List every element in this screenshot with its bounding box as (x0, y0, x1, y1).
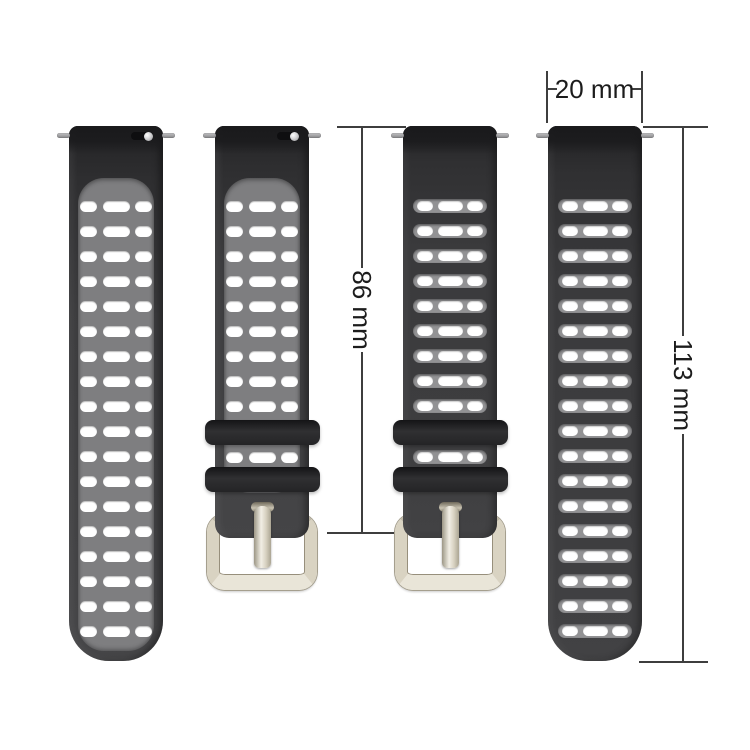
strap-hole (80, 476, 97, 487)
quick-release-knob (144, 132, 153, 141)
strap-hole-row (80, 301, 152, 312)
strap-hole-band (558, 549, 632, 563)
strap-hole (417, 452, 433, 462)
strap-hole (226, 376, 243, 387)
strap-hole (562, 326, 578, 336)
strap-hole (281, 276, 298, 287)
strap-hole-band (558, 449, 632, 463)
strap-hole (612, 601, 628, 611)
quick-release-knob (290, 132, 299, 141)
strap-hole (226, 226, 243, 237)
buckle-prong (442, 506, 459, 568)
strap-hole (417, 401, 433, 411)
strap-hole (135, 551, 152, 562)
strap-hole (583, 601, 608, 611)
strap-hole (562, 401, 578, 411)
strap-hole (80, 351, 97, 362)
strap-hole (438, 452, 463, 462)
strap-hole (583, 526, 608, 536)
dim-86-tick-bottom (327, 532, 399, 534)
strap-hole-row (80, 476, 152, 487)
strap-hole (249, 452, 276, 463)
keeper-loop (393, 467, 508, 492)
strap-hole (135, 526, 152, 537)
strap-hole (583, 351, 608, 361)
strap-hole (612, 251, 628, 261)
strap-hole (80, 551, 97, 562)
strap-hole (135, 351, 152, 362)
strap-hole (612, 476, 628, 486)
strap-hole (562, 201, 578, 211)
strap-hole (80, 201, 97, 212)
spring-bar-pin-left (203, 133, 216, 138)
strap-hole-row (226, 251, 298, 262)
strap-hole-band (558, 399, 632, 413)
strap-hole (80, 226, 97, 237)
spring-bar-pin-right (308, 133, 321, 138)
strap-hole (80, 626, 97, 637)
strap-hole-row (80, 276, 152, 287)
strap-hole (103, 451, 130, 462)
strap-hole (562, 626, 578, 636)
strap-hole-row (80, 626, 152, 637)
dim-113-ext-bottom (639, 661, 708, 663)
watch-strap-dimension-diagram: 20 mm 86 mm 113 mm (0, 0, 750, 750)
strap-hole (281, 301, 298, 312)
strap-hole (103, 326, 130, 337)
strap-hole (226, 201, 243, 212)
strap-hole (583, 426, 608, 436)
strap-hole-row (226, 452, 298, 463)
strap-hole-band (558, 599, 632, 613)
strap-hole (135, 226, 152, 237)
strap-hole-row (226, 376, 298, 387)
strap-hole (562, 526, 578, 536)
strap-hole-band (413, 374, 487, 388)
strap-hole (135, 201, 152, 212)
strap-hole (612, 526, 628, 536)
strap-hole-band (558, 499, 632, 513)
strap-hole (103, 301, 130, 312)
strap-hole (467, 201, 483, 211)
strap-hole-row (226, 326, 298, 337)
strap-hole (583, 276, 608, 286)
strap-hole (612, 451, 628, 461)
strap-hole (135, 401, 152, 412)
strap-hole-band (413, 224, 487, 238)
strap-hole (103, 251, 130, 262)
strap-hole (281, 401, 298, 412)
strap-hole (467, 351, 483, 361)
strap-hole (612, 501, 628, 511)
strap-hole (438, 401, 463, 411)
strap-hole (80, 301, 97, 312)
strap-hole (103, 551, 130, 562)
strap-hole (135, 601, 152, 612)
strap-hole (135, 476, 152, 487)
strap-hole-row (226, 276, 298, 287)
strap-hole (249, 226, 276, 237)
strap-hole (467, 276, 483, 286)
strap-hole-row (80, 251, 152, 262)
strap-hole (612, 326, 628, 336)
dim-width-tick-right (641, 71, 643, 123)
spring-bar-pin-right (641, 133, 654, 138)
strap-hole (583, 326, 608, 336)
strap-hole (135, 576, 152, 587)
strap-hole (103, 501, 130, 512)
spring-bar-pin-left (57, 133, 70, 138)
strap-hole (281, 251, 298, 262)
strap-hole-row (80, 601, 152, 612)
strap-hole (135, 376, 152, 387)
strap-hole (281, 376, 298, 387)
strap-hole-row (226, 351, 298, 362)
keeper-loop (205, 467, 320, 492)
strap-hole (226, 301, 243, 312)
strap-hole (103, 526, 130, 537)
strap-hole-band (558, 199, 632, 213)
strap-hole-row (80, 376, 152, 387)
strap-hole (417, 376, 433, 386)
strap-hole (583, 501, 608, 511)
dim-86-tick-top (337, 126, 406, 128)
strap-hole (612, 226, 628, 236)
strap-hole (103, 376, 130, 387)
strap-hole (438, 301, 463, 311)
strap-hole (438, 201, 463, 211)
strap-hole-band (558, 274, 632, 288)
dim-86-line-upper (361, 126, 363, 268)
strap-hole (612, 301, 628, 311)
strap-hole-row (80, 551, 152, 562)
strap-hole (417, 301, 433, 311)
strap-hole (281, 201, 298, 212)
strap-hole (612, 201, 628, 211)
strap-hole-row (80, 451, 152, 462)
keeper-loop (393, 420, 508, 445)
strap-hole-band (413, 349, 487, 363)
strap-hole (562, 576, 578, 586)
spring-bar-pin-left (391, 133, 404, 138)
strap-hole-band (558, 474, 632, 488)
strap-hole (281, 452, 298, 463)
strap-hole (562, 301, 578, 311)
strap-hole-row (80, 201, 152, 212)
strap-hole-row (80, 501, 152, 512)
strap-hole (562, 551, 578, 561)
strap-hole (80, 526, 97, 537)
strap-hole (80, 276, 97, 287)
strap-hole-band (413, 274, 487, 288)
strap-hole (583, 301, 608, 311)
strap-hole (467, 226, 483, 236)
strap-hole (249, 401, 276, 412)
strap-hole (103, 276, 130, 287)
strap-hole (226, 452, 243, 463)
strap-hole (438, 376, 463, 386)
strap-hole-row (226, 201, 298, 212)
strap-hole (249, 251, 276, 262)
strap-hole (135, 501, 152, 512)
strap-hole (249, 276, 276, 287)
strap-hole (612, 551, 628, 561)
strap-hole (438, 226, 463, 236)
strap-hole-band (413, 450, 487, 464)
strap-hole-band (558, 299, 632, 313)
strap-hole-row (226, 226, 298, 237)
strap-hole (583, 226, 608, 236)
strap-hole-band (413, 324, 487, 338)
strap-hole (583, 251, 608, 261)
strap-hole-band (413, 299, 487, 313)
dim-113-ext-top (643, 126, 708, 128)
strap-hole (583, 376, 608, 386)
strap-hole (80, 251, 97, 262)
strap-hole-row (80, 351, 152, 362)
strap-hole (281, 326, 298, 337)
strap-hole (103, 601, 130, 612)
strap-hole (583, 401, 608, 411)
strap-hole (103, 201, 130, 212)
strap-hole (612, 376, 628, 386)
spring-bar-pin-right (162, 133, 175, 138)
strap-hole-row (80, 326, 152, 337)
strap-hole (103, 226, 130, 237)
strap-hole (417, 201, 433, 211)
strap-hole (583, 551, 608, 561)
strap-hole (80, 426, 97, 437)
strap-hole (135, 426, 152, 437)
strap-hole-band (558, 374, 632, 388)
strap-hole (438, 251, 463, 261)
strap-hole (467, 376, 483, 386)
strap-hole (226, 251, 243, 262)
strap-hole (249, 301, 276, 312)
strap-hole (562, 251, 578, 261)
strap-hole (135, 251, 152, 262)
strap-hole (103, 576, 130, 587)
strap-hole (438, 326, 463, 336)
strap-hole-row (226, 401, 298, 412)
strap-hole-band (558, 324, 632, 338)
strap-hole (612, 626, 628, 636)
strap-hole (562, 276, 578, 286)
strap-hole (438, 276, 463, 286)
strap-hole (103, 351, 130, 362)
strap-hole (80, 501, 97, 512)
strap-hole (249, 376, 276, 387)
strap-hole (226, 276, 243, 287)
strap-hole (583, 626, 608, 636)
strap-hole (562, 601, 578, 611)
strap-hole (281, 351, 298, 362)
strap-hole (281, 226, 298, 237)
strap-hole-band (558, 224, 632, 238)
strap-hole-band (558, 524, 632, 538)
strap-hole (438, 351, 463, 361)
strap-hole (562, 351, 578, 361)
spring-bar-pin-right (496, 133, 509, 138)
strap-hole (467, 251, 483, 261)
dim-113-line-upper (682, 126, 684, 336)
strap-hole (562, 451, 578, 461)
strap-hole (80, 326, 97, 337)
strap-hole (583, 201, 608, 211)
strap-hole-band (413, 249, 487, 263)
strap-hole (562, 376, 578, 386)
strap-top-cap (548, 126, 642, 154)
strap-hole (417, 251, 433, 261)
dim-113-label: 113 mm (669, 315, 697, 455)
strap-hole (135, 301, 152, 312)
strap-hole (612, 351, 628, 361)
strap-hole (417, 226, 433, 236)
strap-hole (417, 351, 433, 361)
strap-hole (467, 301, 483, 311)
strap-hole (226, 326, 243, 337)
strap-hole (467, 401, 483, 411)
strap-hole (103, 626, 130, 637)
strap-hole-row (80, 526, 152, 537)
strap-hole-row (80, 401, 152, 412)
strap-hole (467, 326, 483, 336)
strap-hole (103, 401, 130, 412)
strap-hole (249, 326, 276, 337)
strap-hole (135, 276, 152, 287)
strap-hole-band (558, 249, 632, 263)
strap-hole (583, 576, 608, 586)
strap-hole (226, 401, 243, 412)
strap-hole-row (80, 426, 152, 437)
strap-hole-band (413, 199, 487, 213)
strap-hole (249, 351, 276, 362)
spring-bar-pin-left (536, 133, 549, 138)
strap-hole (135, 326, 152, 337)
strap-hole-band (558, 624, 632, 638)
strap-hole (80, 601, 97, 612)
dim-86-line-lower (361, 352, 363, 533)
strap-hole-band (558, 424, 632, 438)
strap-hole (562, 476, 578, 486)
strap-hole (467, 452, 483, 462)
strap-hole (80, 401, 97, 412)
strap-hole (80, 451, 97, 462)
strap-top-cap (403, 126, 497, 154)
strap-hole (417, 326, 433, 336)
strap-hole (562, 226, 578, 236)
strap-hole (80, 376, 97, 387)
strap-hole (612, 276, 628, 286)
strap-hole (135, 626, 152, 637)
strap-hole-row (80, 226, 152, 237)
strap-hole (612, 401, 628, 411)
strap-hole (80, 576, 97, 587)
strap-hole (226, 351, 243, 362)
strap-hole (103, 426, 130, 437)
buckle-prong (254, 506, 271, 568)
strap-hole (417, 276, 433, 286)
strap-hole-band (413, 399, 487, 413)
strap-hole (562, 426, 578, 436)
dim-width-label: 20 mm (548, 75, 641, 103)
dim-113-line-lower (682, 434, 684, 663)
strap-hole (583, 476, 608, 486)
dim-86-label: 86 mm (348, 250, 376, 370)
strap-hole (612, 426, 628, 436)
keeper-loop (205, 420, 320, 445)
strap-hole-row (80, 576, 152, 587)
strap-hole (562, 501, 578, 511)
strap-hole-row (226, 301, 298, 312)
strap-hole-band (558, 574, 632, 588)
strap-hole (612, 576, 628, 586)
strap-hole (135, 451, 152, 462)
strap-hole (583, 451, 608, 461)
strap-hole (249, 201, 276, 212)
strap-hole (103, 476, 130, 487)
strap-hole-band (558, 349, 632, 363)
